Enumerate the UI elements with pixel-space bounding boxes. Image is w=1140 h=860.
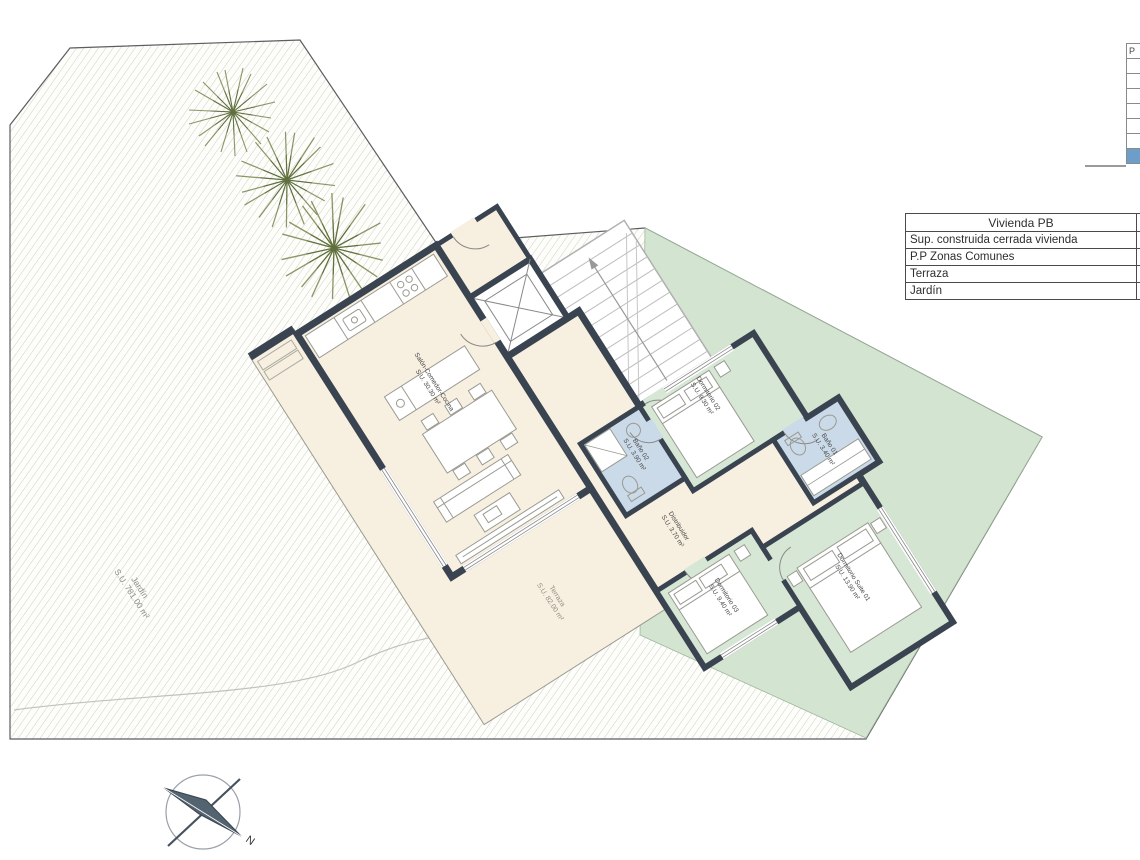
legend-row: P.P Zonas Comunes: [906, 249, 1140, 266]
floor-plan-page: { "legend_table": { "header": "Vivienda …: [0, 0, 1140, 860]
legend-row-value: 1: [1137, 283, 1140, 300]
floor-selector-tick-line: [1085, 165, 1126, 167]
compass: N: [164, 775, 257, 849]
area-legend-table: Vivienda PB Sup. construida cerrada vivi…: [905, 213, 1140, 300]
floor-selector-row[interactable]: [1127, 74, 1140, 89]
legend-header: Vivienda PB: [906, 214, 1137, 232]
legend-row-label: Sup. construida cerrada vivienda: [906, 232, 1137, 249]
legend-row-label: P.P Zonas Comunes: [906, 249, 1137, 266]
legend-row-value: [1137, 266, 1140, 283]
floor-selector-row[interactable]: [1127, 134, 1140, 149]
legend-row: Jardín 1: [906, 283, 1140, 300]
compass-north-label: N: [243, 834, 256, 848]
floor-plan-canvas: Salón-Comedor-Cocina S.U. 30.30 m² Dormi…: [0, 0, 1140, 860]
legend-row-value: [1137, 232, 1140, 249]
legend-row-label: Jardín: [906, 283, 1137, 300]
floor-selector-row-selected[interactable]: [1127, 149, 1140, 164]
floor-selector-row[interactable]: [1127, 104, 1140, 119]
legend-row: Sup. construida cerrada vivienda: [906, 232, 1140, 249]
floor-selector-row[interactable]: [1127, 119, 1140, 134]
floor-selector-row[interactable]: [1127, 59, 1140, 74]
legend-header-value: [1137, 214, 1140, 232]
floor-selector-row[interactable]: [1127, 89, 1140, 104]
floor-selector-header: P: [1127, 44, 1140, 59]
legend-row-value: [1137, 249, 1140, 266]
legend-row-label: Terraza: [906, 266, 1137, 283]
floor-selector: P: [1126, 43, 1140, 164]
legend-row: Terraza: [906, 266, 1140, 283]
